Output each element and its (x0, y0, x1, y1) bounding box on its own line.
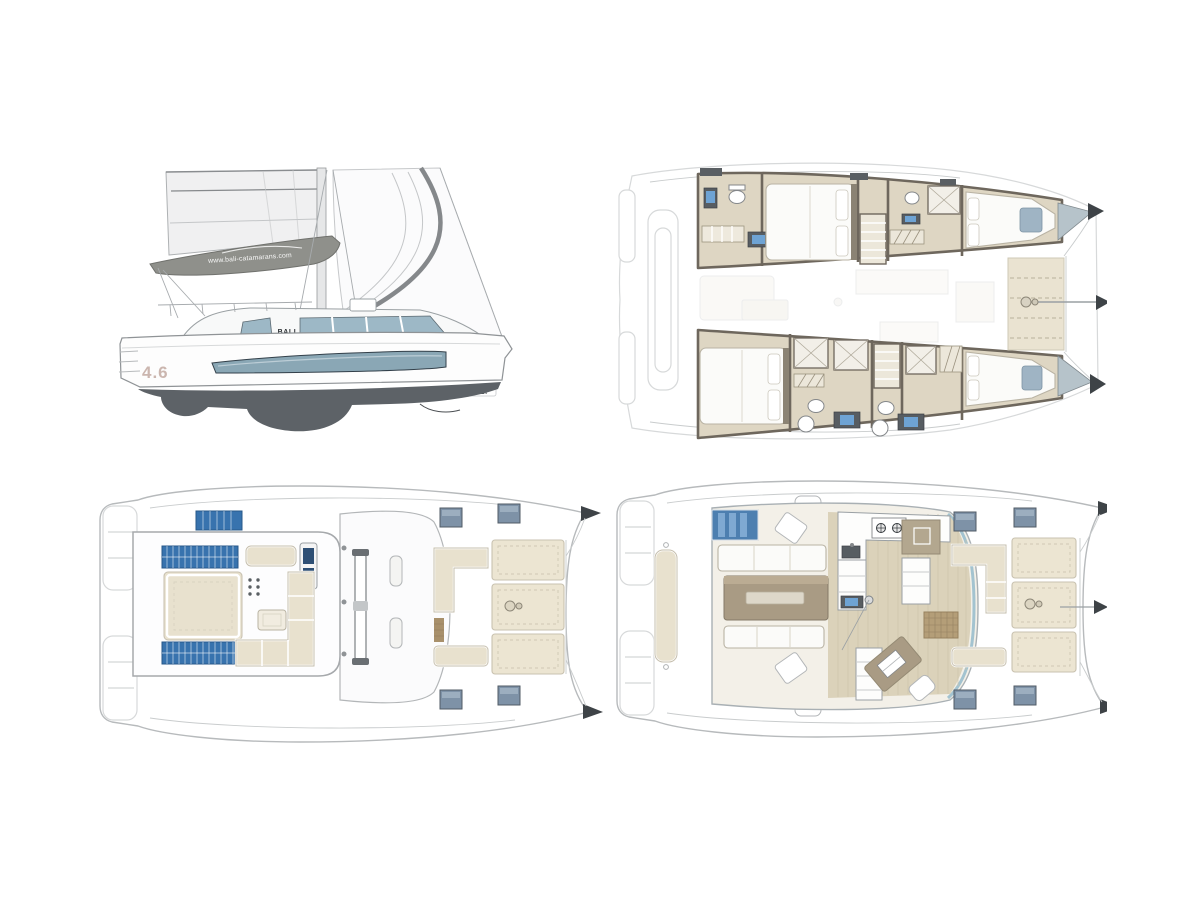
dining-table (724, 576, 828, 620)
bowsprit-tip (1094, 600, 1107, 614)
helm-screen (303, 548, 314, 564)
flybridge-table (258, 610, 286, 630)
galley-sink-icon (842, 546, 860, 558)
toilet-icon (905, 192, 919, 204)
starboard-fwd-bathroom (906, 346, 962, 374)
pillow (836, 190, 848, 220)
deck-hatch (1014, 508, 1036, 527)
helm-seat-side (350, 299, 376, 311)
deck-hatch (440, 508, 462, 527)
port-bow-tip (581, 506, 601, 521)
entrance-mat (924, 612, 958, 638)
deck-hatch (440, 690, 462, 709)
flybridge-sunbed (164, 572, 242, 640)
starboard-aft-cabin-bed (700, 348, 789, 424)
galley-cabinet (902, 558, 930, 604)
hull-underwater (138, 382, 501, 431)
deck-hatch (1014, 686, 1036, 705)
roof-handrail (390, 618, 402, 648)
toilet-icon (729, 191, 745, 204)
toilet-icon (808, 400, 824, 413)
vanity-screen (752, 235, 765, 244)
view-flybridge-plan (95, 465, 610, 760)
port-stairs (860, 214, 886, 264)
vanity-stool (798, 416, 814, 432)
port-aft-cabin-bed (766, 184, 857, 260)
port-bow-tip (1098, 501, 1107, 516)
galley-skylight (712, 510, 758, 540)
vanity-stool (872, 420, 888, 436)
fridge (902, 520, 940, 554)
roof-block (700, 168, 722, 176)
dining-sofa-aft (718, 545, 826, 571)
view-lower-deck-plan (612, 150, 1107, 450)
stove-icon (872, 518, 906, 538)
view-main-deck-plan (612, 460, 1107, 760)
layout-sheet: www.bali-catamarans.com BALI (0, 0, 1200, 900)
solar-panel-coachroof (196, 511, 242, 530)
solar-panel-aft-bottom (162, 642, 238, 664)
dining-bench (724, 626, 824, 648)
roof-handrail (390, 556, 402, 586)
starboard-stairs (874, 344, 900, 388)
deck-hatch (498, 686, 520, 705)
deck-hatch (954, 690, 976, 709)
deck-hatch (954, 512, 976, 531)
view-side-profile: www.bali-catamarans.com BALI (95, 138, 555, 453)
hull-model-text: 4.6 (142, 363, 169, 382)
solar-panel-aft-top (162, 546, 238, 568)
toilet-icon (878, 402, 894, 415)
transom-bench (655, 543, 677, 670)
deck-hatch (498, 504, 520, 523)
bowsprit-tip (1096, 295, 1107, 310)
bed-throw (1020, 208, 1042, 232)
flybridge-platform (133, 511, 340, 676)
starboard-bow-tip (583, 704, 603, 719)
